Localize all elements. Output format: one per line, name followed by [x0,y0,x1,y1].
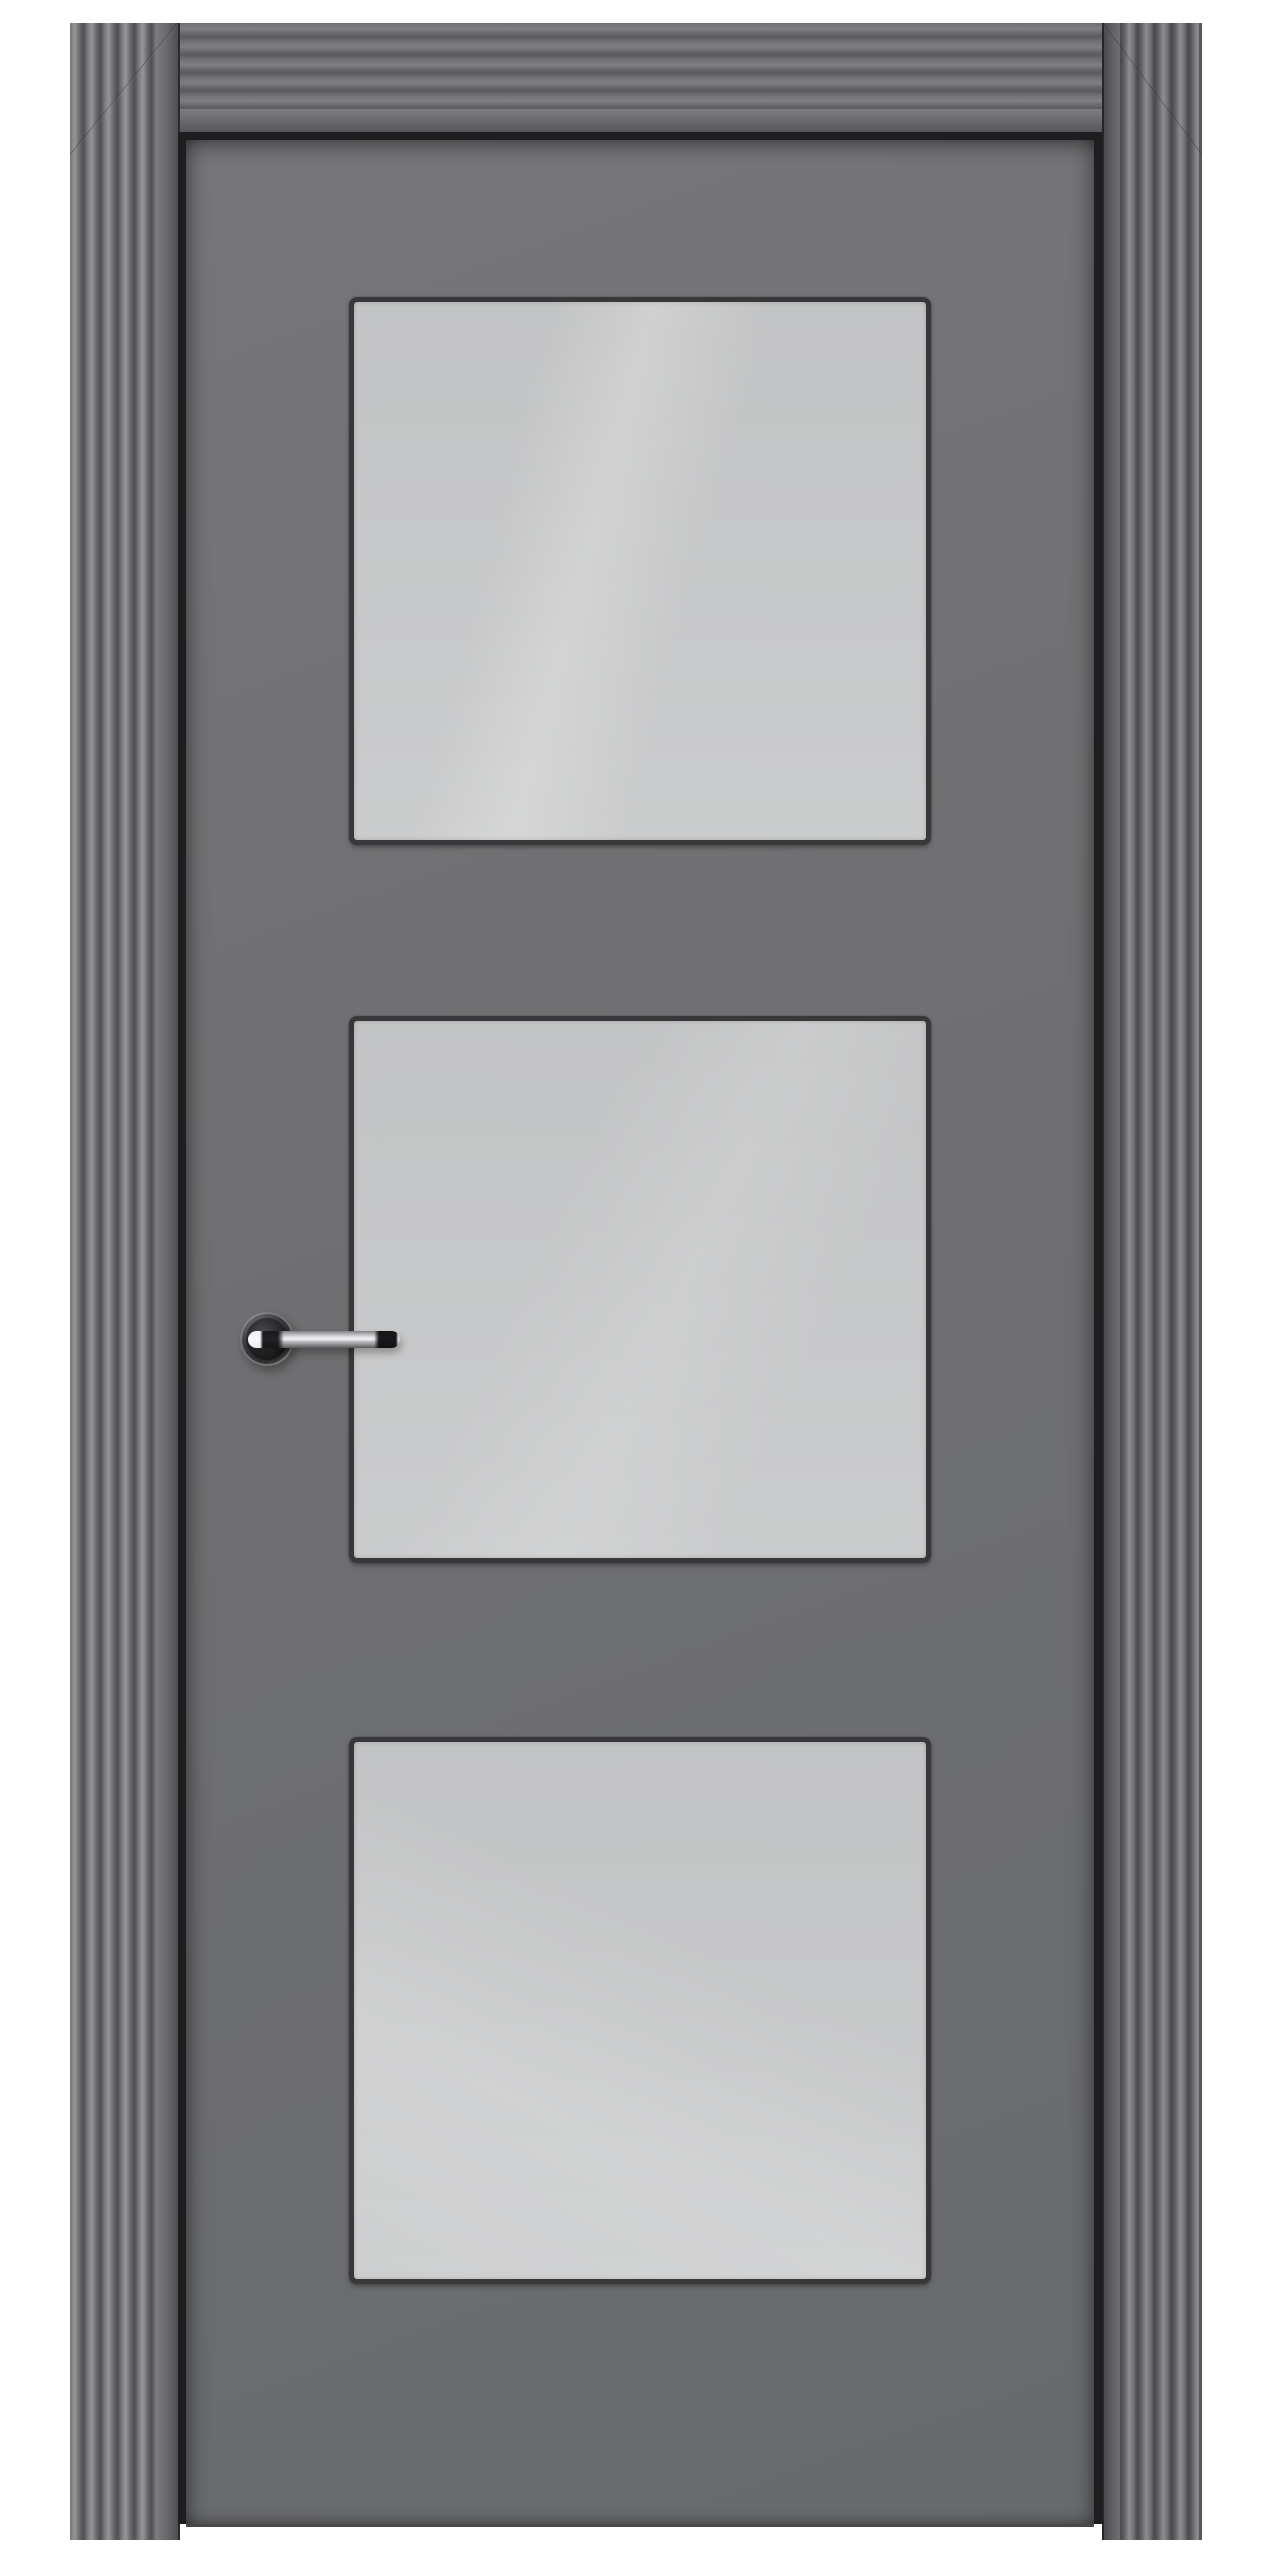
glass-panel-bottom [349,1737,931,2284]
door-frame-left-casing [70,23,178,2540]
door-handle-lever [248,1331,400,1348]
glass-panel-top [349,297,931,845]
glass-panel-middle [349,1016,931,1563]
glass-reflection [354,1742,926,2279]
frame-fluted-molding-right [1120,23,1202,2540]
door-frame-right-casing [1102,23,1202,2540]
frame-jamb-band-top [70,109,1202,134]
frame-outer-edge-right [1199,23,1202,2540]
door-product-photo [0,0,1280,2560]
glass-reflection [354,1021,926,1558]
frame-jamb-band-right [1102,23,1122,2540]
door-frame-head-casing [70,23,1202,132]
frame-fluted-molding-top [70,23,1202,109]
glass-reflection [354,302,926,840]
frame-fluted-molding-left [70,23,156,2540]
frame-jamb-band-left [156,23,180,2540]
